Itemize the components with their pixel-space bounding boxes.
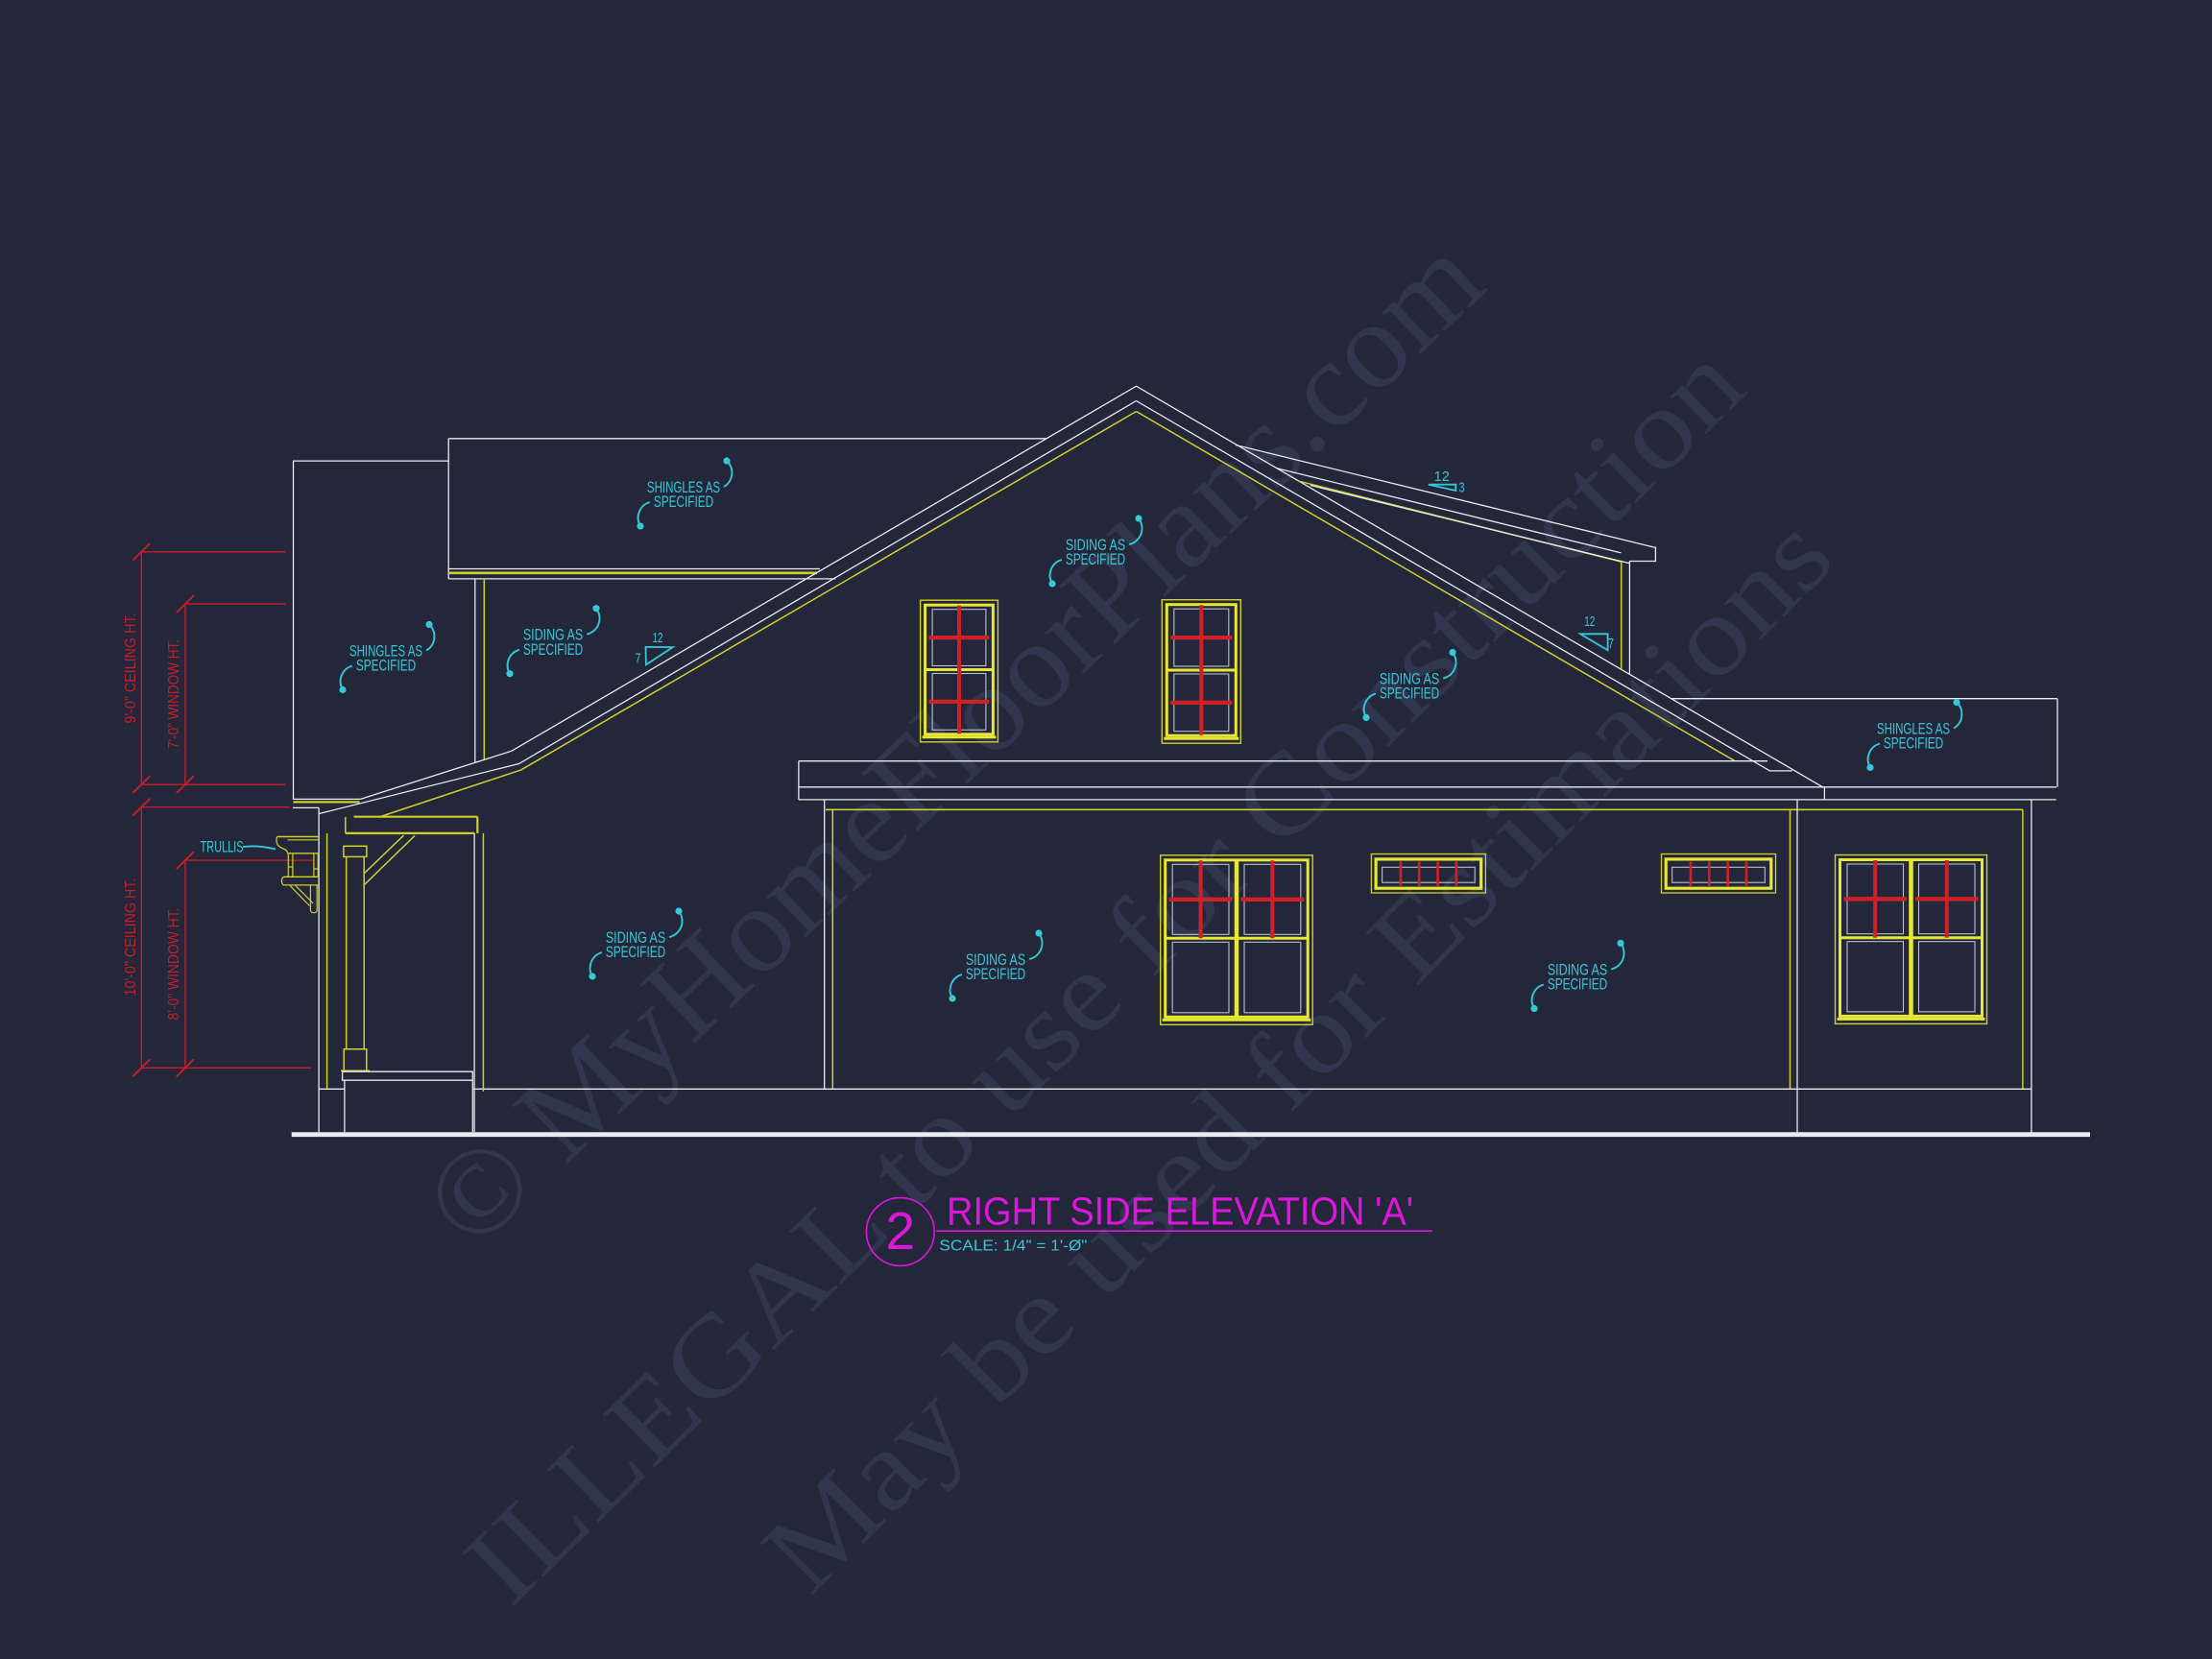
svg-text:SPECIFIED: SPECIFIED: [1548, 976, 1607, 994]
svg-text:RIGHT SIDE ELEVATION 'A': RIGHT SIDE ELEVATION 'A': [947, 1189, 1413, 1233]
svg-text:3: 3: [1459, 480, 1465, 496]
svg-text:9'-0" CEILING HT.: 9'-0" CEILING HT.: [123, 613, 139, 724]
svg-text:7: 7: [1608, 636, 1614, 652]
svg-text:SPECIFIED: SPECIFIED: [1380, 685, 1439, 703]
svg-text:SPECIFIED: SPECIFIED: [1066, 551, 1125, 568]
svg-text:12: 12: [653, 630, 663, 646]
svg-text:SPECIFIED: SPECIFIED: [1884, 735, 1943, 753]
svg-text:10'-0" CEILING HT.: 10'-0" CEILING HT.: [123, 878, 139, 997]
svg-text:SPECIFIED: SPECIFIED: [966, 966, 1025, 983]
svg-text:2: 2: [886, 1201, 916, 1261]
svg-text:8'-0" WINDOW HT.: 8'-0" WINDOW HT.: [166, 908, 182, 1021]
svg-text:12: 12: [1434, 469, 1450, 485]
svg-text:SPECIFIED: SPECIFIED: [523, 641, 583, 659]
svg-text:TRULLIS: TRULLIS: [201, 839, 244, 856]
svg-text:SPECIFIED: SPECIFIED: [356, 658, 416, 675]
svg-text:SPECIFIED: SPECIFIED: [654, 493, 713, 511]
svg-text:12: 12: [1584, 613, 1595, 630]
svg-text:SCALE: 1/4" = 1'-Ø": SCALE: 1/4" = 1'-Ø": [939, 1238, 1087, 1255]
svg-text:7'-0" WINDOW HT.: 7'-0" WINDOW HT.: [166, 639, 182, 749]
svg-text:7: 7: [636, 651, 641, 667]
svg-text:SPECIFIED: SPECIFIED: [606, 944, 665, 961]
